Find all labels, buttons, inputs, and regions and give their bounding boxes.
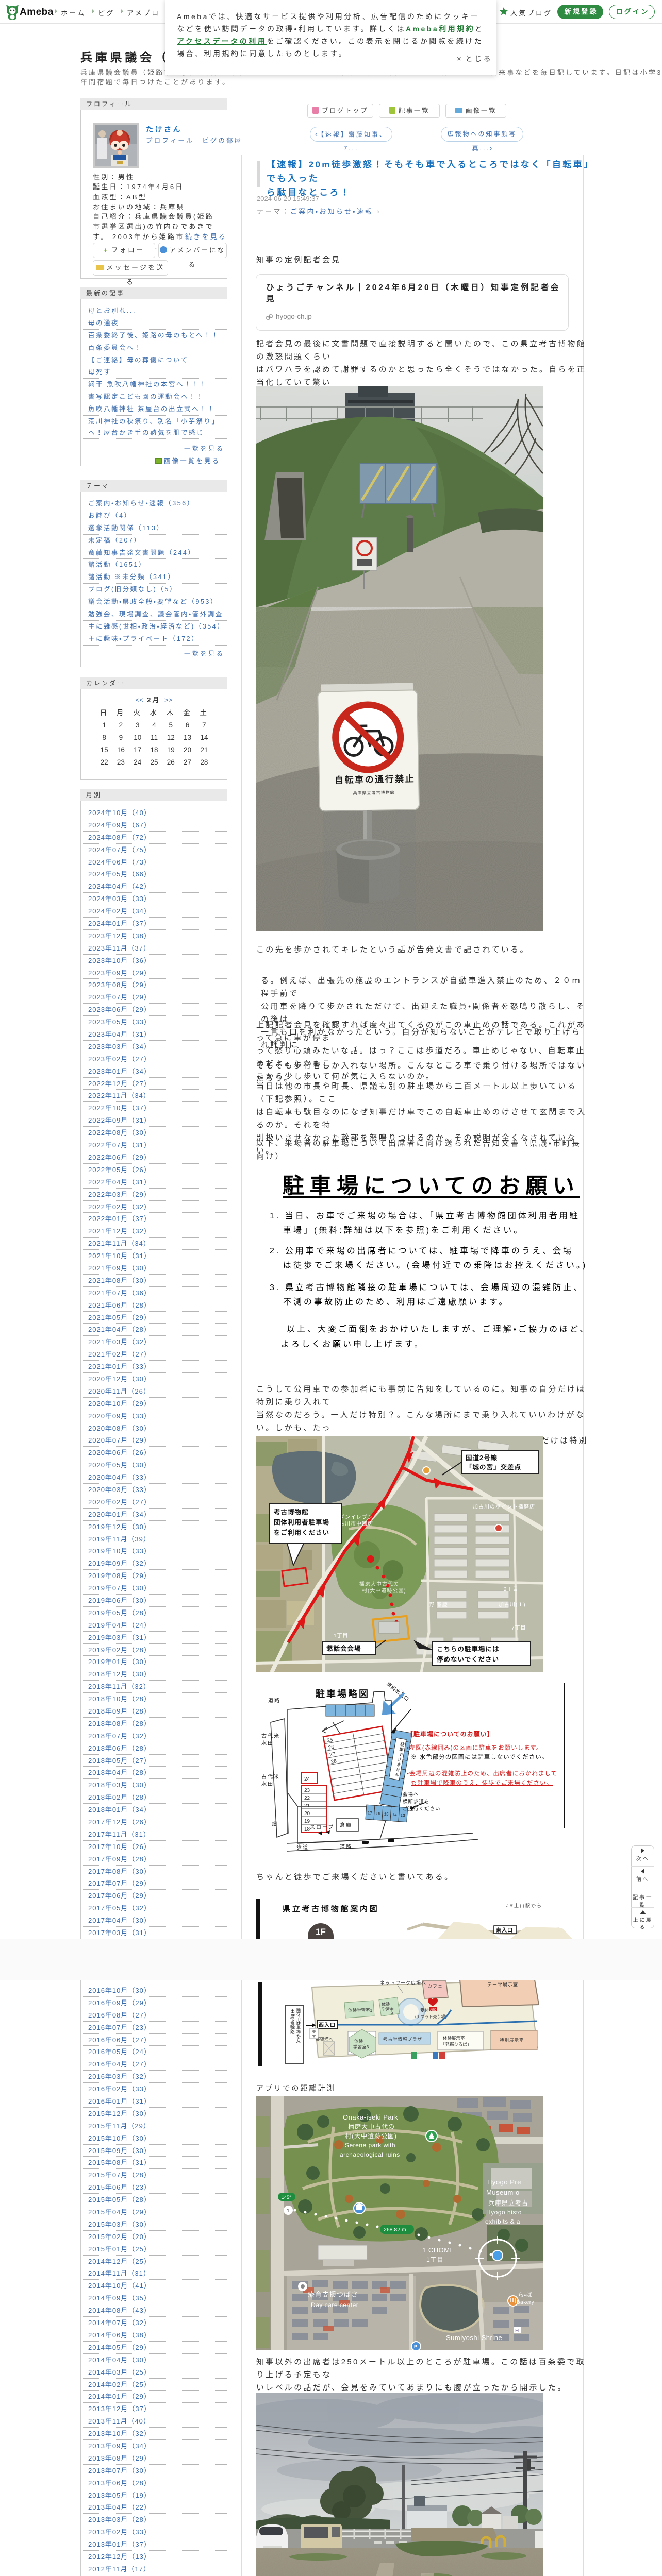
svg-text:受付: 受付 (420, 2008, 429, 2013)
svg-text:18: 18 (304, 1826, 310, 1832)
svg-text:17: 17 (368, 1810, 373, 1816)
svg-text:20: 20 (304, 1811, 310, 1817)
svg-text:駐車場略図: 駐車場略図 (316, 1688, 370, 1699)
svg-text:archaeological ruins: archaeological ruins (340, 2151, 400, 2158)
svg-text:(チケット売り場): (チケット売り場) (415, 2014, 447, 2019)
svg-text:1丁目: 1丁目 (334, 1633, 349, 1639)
svg-text:カフェ: カフェ (427, 1984, 443, 1989)
svg-text:野 春慶: 野 春慶 (429, 1601, 448, 1608)
svg-text:※ 水色部分の区画には駐車しないでください。: ※ 水色部分の区画には駐車しないでください。 (411, 1753, 548, 1760)
svg-text:Hyogo Pre: Hyogo Pre (487, 2178, 521, 2186)
svg-text:歩道: 歩道 (296, 1844, 309, 1851)
svg-text:Sumiyoshi Shrine: Sumiyoshi Shrine (446, 2334, 502, 2342)
svg-text:テーマ展示室: テーマ展示室 (487, 1981, 518, 1987)
svg-text:考古学情報プラザ: 考古学情報プラザ (383, 2037, 422, 2042)
svg-text:兵庫県立考古博物館: 兵庫県立考古博物館 (353, 790, 394, 795)
svg-text:学習室3: 学習室3 (353, 2044, 369, 2049)
svg-text:(団体用駐車場から): (団体用駐車場から) (296, 2008, 301, 2044)
svg-text:体験学習室1: 体験学習室1 (348, 2008, 373, 2013)
svg-text:19: 19 (304, 1819, 310, 1824)
svg-text:145°: 145° (282, 2195, 291, 2200)
svg-text:7丁目: 7丁目 (511, 1625, 526, 1631)
svg-text:考古博物館: 考古博物館 (273, 1508, 309, 1516)
svg-text:道路: 道路 (268, 1697, 280, 1704)
svg-text:畑: 畑 (272, 1821, 278, 1827)
svg-text:播磨大中古代の: 播磨大中古代の (348, 2123, 395, 2130)
svg-text:1丁目: 1丁目 (426, 2256, 444, 2263)
svg-text:2丁目: 2丁目 (504, 1587, 519, 1592)
svg-text:2: 2 (391, 2010, 394, 2015)
svg-text:・会場周辺の混雑防止のため、出席者におかれまして: ・会場周辺の混雑防止のため、出席者におかれまして (407, 1770, 557, 1777)
svg-text:水田: 水田 (261, 1781, 274, 1787)
svg-text:加古川(１): 加古川(１) (499, 1601, 526, 1608)
svg-text:ネットワーク広場へ: ネットワーク広場へ (380, 1980, 426, 1986)
svg-text:こちらの駐車場には: こちらの駐車場には (437, 1645, 500, 1653)
svg-text:・左図(赤線囲み)の区画に駐車をお願いします。: ・左図(赤線囲み)の区画に駐車をお願いします。 (407, 1744, 542, 1751)
svg-text:P: P (414, 2344, 417, 2349)
svg-text:国道2号線: 国道2号線 (466, 1454, 498, 1462)
svg-text:1: 1 (287, 2208, 290, 2214)
svg-text:「城の宮」交差点: 「城の宮」交差点 (466, 1463, 521, 1471)
svg-text:水田: 水田 (261, 1740, 274, 1747)
svg-text:1 CHOME: 1 CHOME (422, 2246, 455, 2254)
svg-text:兵庫県立考古: 兵庫県立考古 (488, 2199, 528, 2207)
svg-text:Bakery: Bakery (517, 2300, 534, 2306)
svg-text:横断歩道を: 横断歩道を (403, 1799, 430, 1805)
svg-text:23: 23 (304, 1788, 310, 1793)
svg-text:東入口: 東入口 (496, 1927, 513, 1934)
svg-text:14: 14 (392, 1812, 397, 1818)
svg-text:加古川のポイント播磨店: 加古川のポイント播磨店 (473, 1503, 535, 1510)
svg-text:倉庫: 倉庫 (340, 1822, 352, 1828)
svg-text:村(大中遺跡公園): 村(大中遺跡公園) (362, 1587, 406, 1594)
svg-text:Onaka-iseki Park: Onaka-iseki Park (343, 2113, 398, 2121)
svg-text:AED: AED (430, 2009, 437, 2012)
svg-text:体験: 体験 (382, 2002, 390, 2007)
svg-text:停めないでください: 停めないでください (436, 1655, 499, 1663)
svg-text:JR土山駅から: JR土山駅から (506, 1903, 542, 1908)
svg-text:21: 21 (304, 1803, 310, 1809)
svg-text:ご通行ください: ご通行ください (403, 1806, 441, 1812)
svg-text:療育支援つばさ: 療育支援つばさ (308, 2291, 358, 2298)
svg-text:16: 16 (375, 1811, 380, 1816)
svg-text:15: 15 (384, 1812, 389, 1817)
svg-text:出席者経路: 出席者経路 (290, 2008, 295, 2035)
svg-text:古代米: 古代米 (261, 1733, 280, 1739)
svg-text:24: 24 (304, 1776, 310, 1782)
svg-text:村(大中遺跡公園): 村(大中遺跡公園) (345, 2132, 397, 2140)
svg-text:をご利用ください: をご利用ください (274, 1529, 329, 1536)
svg-text:ら・ば: ら・ば (518, 2292, 532, 2298)
svg-text:道路: 道路 (340, 1843, 352, 1850)
svg-text:H: H (515, 2328, 519, 2334)
svg-text:特別展示室: 特別展示室 (500, 2038, 524, 2043)
svg-text:exhibits & a: exhibits & a (485, 2218, 520, 2225)
svg-text:懇話会会場: 懇話会会場 (326, 1645, 361, 1652)
svg-text:【駐車場についてのお願い】: 【駐車場についてのお願い】 (407, 1730, 494, 1738)
svg-text:22: 22 (304, 1795, 310, 1801)
svg-text:268.82 m: 268.82 m (384, 2227, 406, 2233)
svg-text:スロープ: スロープ (310, 1824, 334, 1831)
svg-text:Hyogo histo: Hyogo histo (486, 2209, 522, 2216)
svg-text:13: 13 (400, 1813, 405, 1818)
svg-text:「発掘ひろば」: 「発掘ひろば」 (441, 2042, 472, 2047)
svg-text:古代米: 古代米 (261, 1773, 280, 1780)
svg-text:自転車の通行禁止: 自転車の通行禁止 (335, 773, 415, 785)
svg-text:西入口: 西入口 (319, 2022, 336, 2028)
svg-text:Serene park with: Serene park with (345, 2142, 395, 2149)
svg-text:播磨大中古代の: 播磨大中古代の (359, 1581, 399, 1587)
svg-text:会場へ: 会場へ (403, 1791, 419, 1798)
svg-text:も駐車場で降車のうえ、徒歩でご来場ください。: も駐車場で降車のうえ、徒歩でご来場ください。 (411, 1779, 553, 1786)
svg-text:体験展示室: 体験展示室 (443, 2036, 465, 2041)
svg-text:体験: 体験 (354, 2039, 363, 2044)
svg-text:団体利用者駐車場: 団体利用者駐車場 (274, 1518, 329, 1526)
svg-text:Day care center: Day care center (311, 2301, 358, 2309)
svg-text:Museum o: Museum o (486, 2189, 520, 2196)
